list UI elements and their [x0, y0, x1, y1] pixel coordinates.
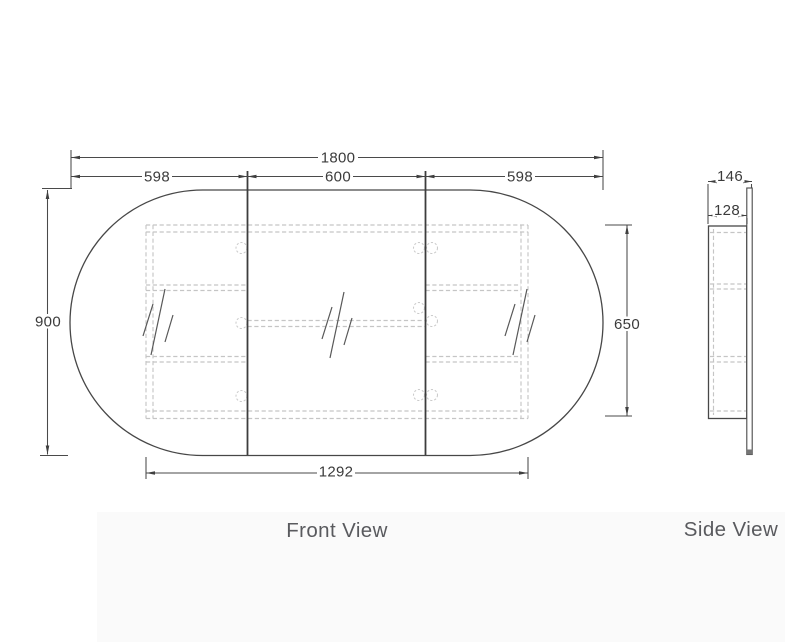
mirror-outline	[70, 190, 603, 456]
hinge-circles	[236, 243, 438, 402]
dim-label-900: 900	[35, 314, 61, 331]
dim-door-widths: 598 600 598	[71, 169, 603, 186]
door-dividers	[248, 171, 426, 455]
cabinet-carcass-hidden-lines	[146, 225, 528, 419]
side-hidden-lines	[710, 229, 746, 415]
shelf-hidden-lines	[146, 285, 521, 362]
dim-cabinet-width: 1292	[146, 457, 528, 481]
side-mirror-panel	[747, 188, 752, 455]
mirror-reflection-marks	[143, 289, 535, 358]
side-mirror-panel-tip	[747, 450, 752, 455]
technical-drawing-canvas: 1800 598 600 598 900	[0, 0, 800, 642]
side-cabinet-body	[709, 226, 747, 419]
watermark-band	[97, 512, 785, 642]
dim-label-left-door: 598	[144, 169, 170, 186]
front-view-label: Front View	[286, 519, 388, 542]
dim-label-center-door: 600	[325, 169, 351, 186]
dim-cabinet-depth: 128	[708, 202, 747, 225]
dim-label-1292: 1292	[319, 464, 354, 481]
side-view-label: Side View	[684, 518, 778, 541]
dim-label-650: 650	[614, 316, 640, 333]
dim-label-146: 146	[717, 168, 743, 185]
dim-cabinet-height: 650	[605, 225, 642, 416]
dim-overall-height: 900	[32, 189, 73, 456]
front-view: 1800 598 600 598 900	[32, 150, 642, 543]
side-view: 146 128 Side View	[684, 168, 778, 542]
dim-label-right-door: 598	[507, 169, 533, 186]
mirror-cabinet-drawing: 1800 598 600 598 900	[0, 0, 800, 642]
dim-label-1800: 1800	[321, 150, 356, 167]
dim-label-128: 128	[714, 202, 740, 219]
